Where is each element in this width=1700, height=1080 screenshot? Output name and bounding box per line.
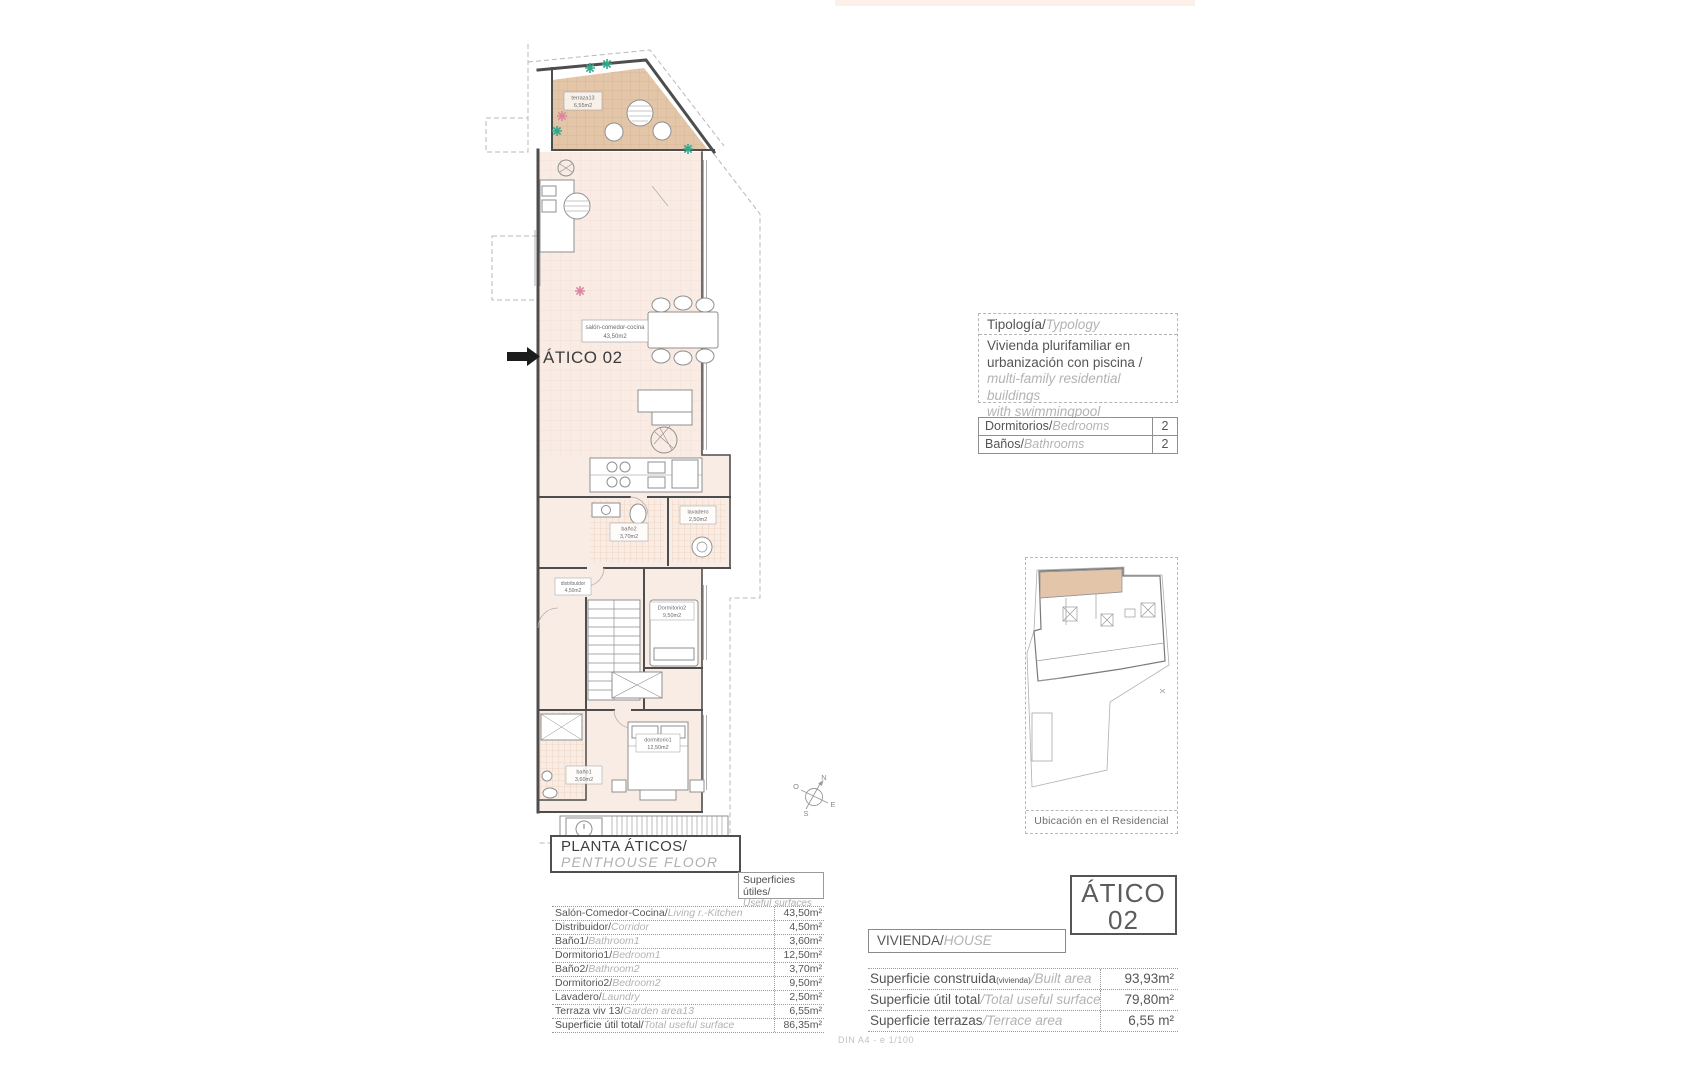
washing-machine <box>692 537 712 557</box>
svg-text:9,50m2: 9,50m2 <box>663 613 681 619</box>
svg-text:3,60m2: 3,60m2 <box>575 777 593 783</box>
room-label-salon: salón-comedor-cocina 43,50m2 <box>582 320 648 342</box>
location-inset: Ubicación en el Residencial <box>1025 557 1178 834</box>
room-label-dormitorio1: dormitorio1 12,50m2 <box>636 734 680 752</box>
unit-pointer: ÁTICO 02 <box>507 347 623 367</box>
table-row: Baño2/Bathroom2 3,70m² <box>552 963 824 977</box>
table-row: Superficie terrazas/Terrace area 6,55 m² <box>868 1011 1178 1032</box>
svg-text:Dormitorio2: Dormitorio2 <box>658 606 686 612</box>
table-row: Terraza viv 13/Garden area13 6,55m² <box>552 1005 824 1019</box>
compass-icon: N E S O <box>793 773 835 818</box>
bathroom1 <box>540 712 584 798</box>
typology-box: Tipología/Typology Vivienda plurifamilia… <box>978 313 1178 403</box>
room-label-bano1: baño1 3,60m2 <box>566 766 602 784</box>
counts-table: Dormitorios/Bedrooms 2 Baños/Bathrooms 2 <box>978 417 1178 454</box>
table-row: Salón-Comedor-Cocina/Living r.-Kitchen 4… <box>552 907 824 921</box>
bathrooms-count: 2 <box>1152 436 1177 453</box>
table-row: Superficie útil total/Total useful surfa… <box>868 990 1178 1011</box>
table-row: Superficie construida(vivienda)/Built ar… <box>868 969 1178 990</box>
title-block: PLANTA ÁTICOS/ PENTHOUSE FLOOR <box>550 835 741 873</box>
unit-label-box: ÁTICO 02 <box>1070 875 1177 935</box>
svg-text:O: O <box>793 782 799 791</box>
page-title: PLANTA ÁTICOS/ <box>561 838 730 855</box>
svg-text:salón-comedor-cocina: salón-comedor-cocina <box>585 325 645 331</box>
floor-plan: terraza13 6,55m2 salón-comedor-cocina 43… <box>460 40 880 860</box>
room-label-terraza: terraza13 6,55m2 <box>564 92 602 110</box>
pointer-label: ÁTICO 02 <box>543 348 623 367</box>
terrace-chair <box>653 122 671 140</box>
top-edge-artifact <box>835 0 1195 6</box>
svg-text:2,50m2: 2,50m2 <box>689 517 707 523</box>
typology-header: Tipología/Typology <box>979 314 1177 335</box>
table-row: Dormitorios/Bedrooms 2 <box>979 418 1177 435</box>
house-summary-table: Superficie construida(vivienda)/Built ar… <box>868 968 1178 1032</box>
useful-surfaces-label: Superficies útiles/ Useful surfaces <box>738 872 824 899</box>
site-plan <box>1026 558 1177 810</box>
plan-sheet: terraza13 6,55m2 salón-comedor-cocina 43… <box>0 0 1700 1080</box>
svg-text:baño2: baño2 <box>621 527 636 533</box>
svg-text:terraza13: terraza13 <box>571 96 594 102</box>
table-row: Lavadero/Laundry 2,50m² <box>552 991 824 1005</box>
terrace-area-value: 6,55 m² <box>1100 1011 1178 1031</box>
svg-text:6,55m2: 6,55m2 <box>574 103 592 109</box>
dining-table <box>648 312 718 348</box>
table-row: Dormitorio2/Bedroom2 9,50m² <box>552 977 824 991</box>
svg-text:dormitorio1: dormitorio1 <box>644 738 672 744</box>
svg-text:E: E <box>830 800 835 809</box>
house-header: VIVIENDA/HOUSE <box>868 929 1066 953</box>
table-row: Dormitorio1/Bedroom1 12,50m² <box>552 949 824 963</box>
built-area-value: 93,93m² <box>1100 969 1178 989</box>
room-label-lavadero: lavadero 2,50m2 <box>680 506 716 524</box>
svg-text:N: N <box>821 773 826 782</box>
svg-text:distribuidor: distribuidor <box>561 581 586 587</box>
svg-text:lavadero: lavadero <box>687 510 708 516</box>
terrace-table <box>627 100 653 126</box>
svg-text:S: S <box>803 809 808 818</box>
room-label-distribuidor: distribuidor 4,50m2 <box>555 578 591 595</box>
svg-text:4,50m2: 4,50m2 <box>565 588 582 594</box>
room-label-dormitorio2: Dormitorio2 9,50m2 <box>650 602 694 620</box>
room-label-bano2: baño2 3,70m2 <box>610 523 648 541</box>
svg-text:43,50m2: 43,50m2 <box>603 334 627 340</box>
terrace-chair <box>605 123 623 141</box>
svg-text:12,50m2: 12,50m2 <box>647 745 668 751</box>
table-row: Baños/Bathrooms 2 <box>979 435 1177 453</box>
table-row: Baño1/Bathroom1 3,60m² <box>552 935 824 949</box>
areas-table: Salón-Comedor-Cocina/Living r.-Kitchen 4… <box>552 906 824 1033</box>
table-row-total: Superficie útil total/Total useful surfa… <box>552 1019 824 1033</box>
scale-note: DIN A4 - e 1/100 <box>838 1035 914 1045</box>
typology-body: Vivienda plurifamiliar en urbanización c… <box>979 335 1177 424</box>
useful-area-value: 79,80m² <box>1100 990 1178 1010</box>
svg-text:3,70m2: 3,70m2 <box>620 534 638 540</box>
table-row: Distribuidor/Corridor 4,50m² <box>552 921 824 935</box>
location-caption: Ubicación en el Residencial <box>1026 810 1177 832</box>
bedrooms-count: 2 <box>1152 418 1177 435</box>
desk <box>638 390 692 412</box>
page-title-en: PENTHOUSE FLOOR <box>561 855 730 870</box>
svg-text:baño1: baño1 <box>576 770 591 776</box>
